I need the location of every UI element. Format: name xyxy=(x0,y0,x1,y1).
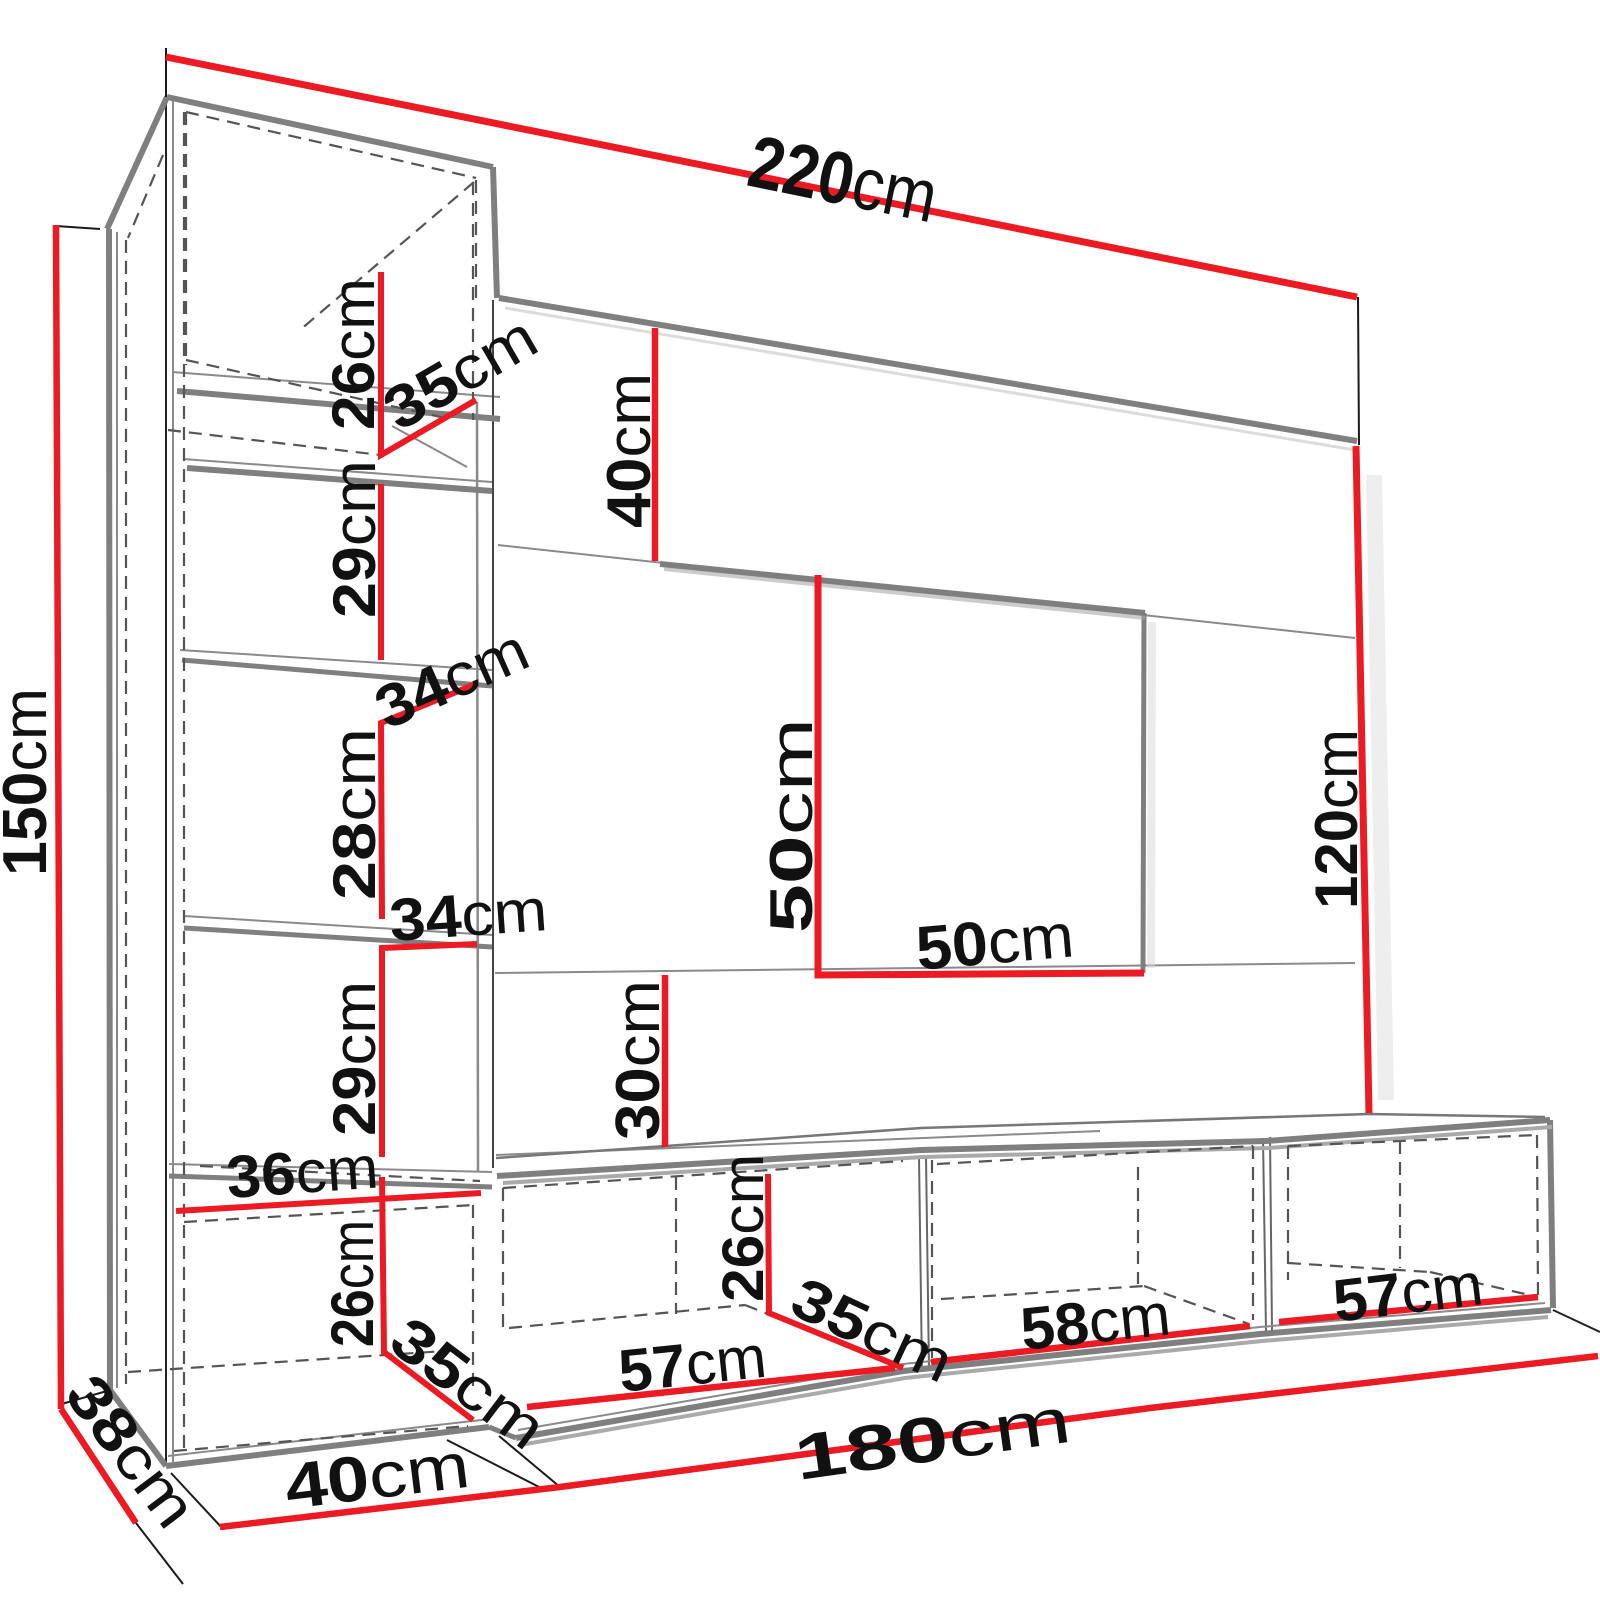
svg-text:29cm: 29cm xyxy=(321,981,388,1136)
svg-text:26cm: 26cm xyxy=(320,278,387,430)
svg-text:120cm: 120cm xyxy=(1303,729,1370,909)
svg-text:29cm: 29cm xyxy=(321,460,388,618)
svg-text:34cm: 34cm xyxy=(387,876,549,954)
svg-text:30cm: 30cm xyxy=(604,980,673,1140)
svg-text:26cm: 26cm xyxy=(319,1220,386,1347)
svg-text:26cm: 26cm xyxy=(711,1154,776,1302)
svg-text:50cm: 50cm xyxy=(913,901,1076,984)
svg-text:50cm: 50cm xyxy=(758,718,825,933)
svg-text:28cm: 28cm xyxy=(321,728,388,900)
svg-text:36cm: 36cm xyxy=(224,1134,380,1211)
svg-text:150cm: 150cm xyxy=(0,688,60,876)
svg-text:40cm: 40cm xyxy=(595,373,664,528)
